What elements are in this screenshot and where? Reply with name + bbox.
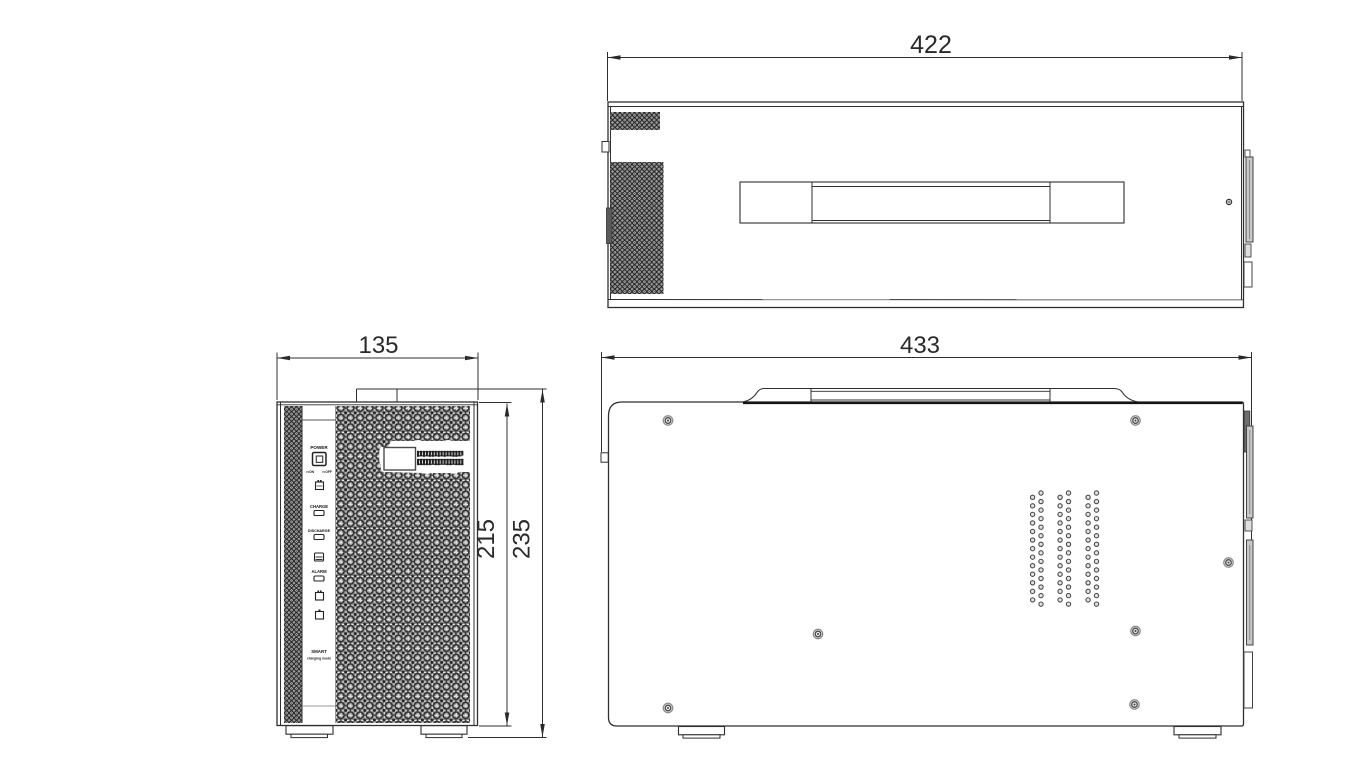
svg-text:▭OFF: ▭OFF bbox=[322, 470, 332, 474]
svg-text:▭ON: ▭ON bbox=[306, 470, 315, 474]
svg-text:422: 422 bbox=[910, 31, 952, 59]
svg-text:235: 235 bbox=[509, 519, 536, 559]
svg-text:charging mode: charging mode bbox=[307, 657, 331, 661]
svg-text:135: 135 bbox=[358, 332, 398, 359]
svg-text:433: 433 bbox=[900, 332, 940, 359]
svg-text:SMART: SMART bbox=[311, 649, 327, 654]
svg-text:CHARGE: CHARGE bbox=[310, 504, 328, 509]
svg-text:ALARM: ALARM bbox=[311, 569, 327, 574]
svg-text:POWER: POWER bbox=[310, 445, 328, 450]
svg-text:DISCHARGE: DISCHARGE bbox=[308, 529, 331, 533]
svg-text:215: 215 bbox=[473, 519, 500, 559]
